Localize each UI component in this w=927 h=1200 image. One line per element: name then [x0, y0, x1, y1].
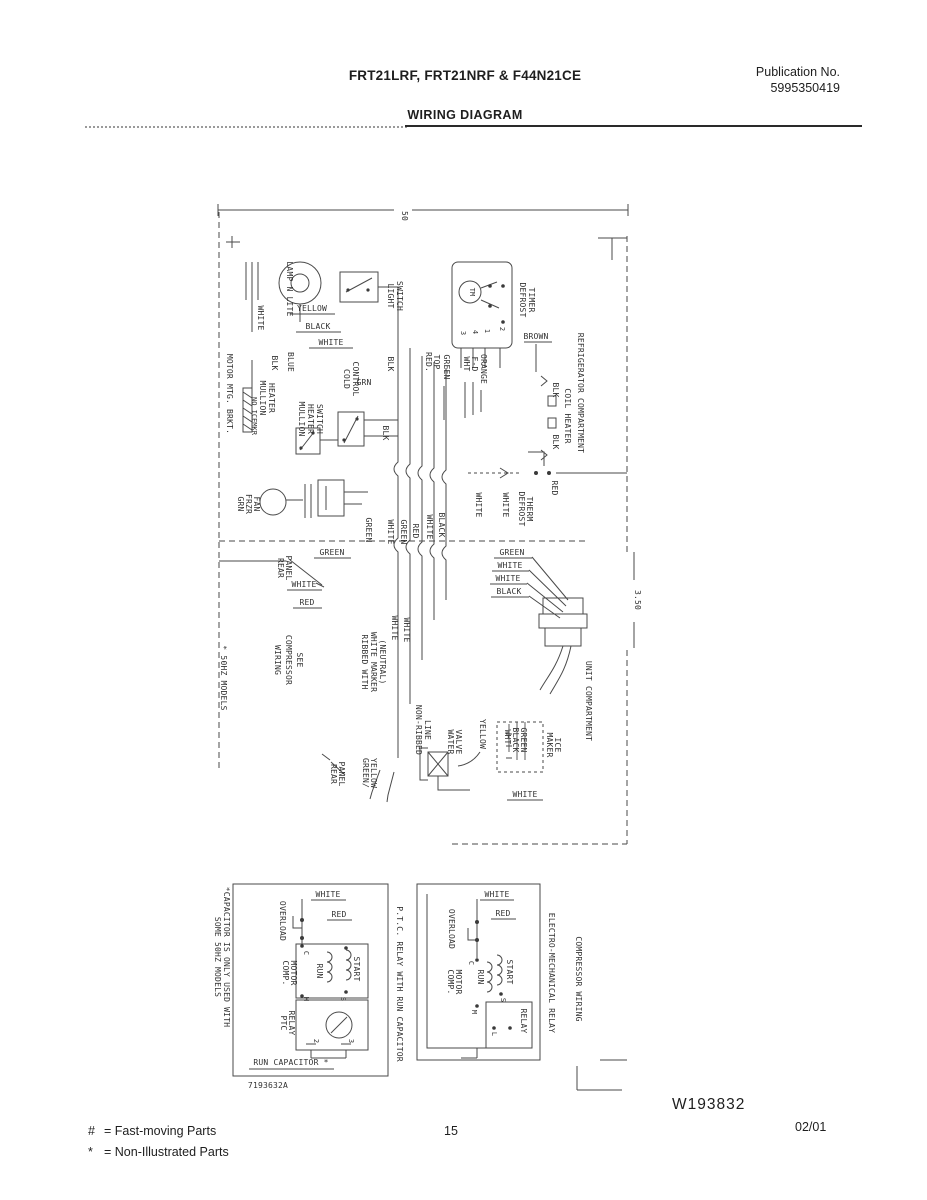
em-wire-red: RED [495, 909, 510, 918]
ice-maker-wire-3: WHT [503, 729, 512, 744]
em-comp-motor-2: MOTOR [454, 969, 463, 994]
ptc-note-1: *CAPACITOR IS ONLY USED WITH [222, 887, 231, 1027]
ptc-terminal-m: M [302, 997, 310, 1001]
cold-control-label-2: CONTROL [351, 361, 360, 396]
rear-panel-lower-1: REAR [329, 764, 338, 784]
harness-wire-2: WHITE [497, 561, 522, 570]
compressor-wiring-label: COMPRESSOR WIRING [574, 936, 583, 1021]
wire-brown: BROWN [523, 332, 548, 341]
bundle-wire-6: BLACK [437, 512, 446, 537]
wire-fd: F-D [470, 356, 479, 371]
green-yellow-1: GREEN/ [361, 758, 370, 788]
ptc-terminal-2: 2 [312, 1039, 320, 1043]
wire-orange-t1: ORANGE [479, 354, 488, 384]
see-compressor-wiring-2: COMPRESSOR [284, 635, 293, 685]
wire-yellow: YELLOW [297, 304, 327, 313]
legend-text-non-illustrated: = Non-Illustrated Parts [104, 1142, 229, 1163]
wire-blk-b: BLK [270, 355, 279, 370]
ptc-diagram-linework [233, 884, 388, 1076]
dimension-top: 50 [400, 211, 409, 221]
see-compressor-wiring-1: SEE [295, 652, 304, 667]
page-number: 15 [444, 1124, 458, 1138]
rear-panel-wire-3: RED [299, 598, 314, 607]
coil-heater-wire-1: BLK [551, 382, 560, 397]
unit-compartment-label: UNIT COMPARTMENT [584, 661, 593, 741]
water-valve-label-2: VALVE [454, 729, 463, 754]
ribbed-note-2: WHITE MARKER [369, 632, 378, 692]
em-overload-label: OVERLOAD [447, 909, 456, 949]
em-terminal-c: C [467, 961, 475, 965]
em-comp-motor-1: COMP. [446, 969, 455, 994]
legend-symbol-hash: # [88, 1121, 104, 1142]
wire-white-top: WHITE [318, 338, 343, 347]
wire-black: BLACK [305, 322, 330, 331]
wire-red-top-1: RED. [424, 352, 433, 372]
wire-blue: BLUE [286, 352, 295, 372]
legend-text-fast-moving: = Fast-moving Parts [104, 1121, 216, 1142]
ribbed-note-3: (NEUTRAL) [378, 639, 387, 684]
ptc-terminal-3: 3 [347, 1039, 355, 1043]
ptc-terminal-s: S [339, 997, 347, 1001]
em-run-label: RUN [476, 969, 485, 984]
harness-wire-1: GREEN [499, 548, 524, 557]
lamp-label: LAMP N LITE [285, 261, 294, 316]
harness-wire-4: BLACK [496, 587, 521, 596]
wire-white-lamp: WHITE [256, 305, 265, 330]
non-ribbed-line-1: NON-RIBBED [414, 705, 423, 755]
legend-non-illustrated: * = Non-Illustrated Parts [88, 1142, 229, 1163]
em-title: ELECTRO-MECHANICAL RELAY [547, 913, 556, 1033]
frzr-fan-label-1: FRZR [244, 494, 253, 514]
em-diagram-labels: ELECTRO-MECHANICAL RELAY COMPRESSOR WIRI… [446, 890, 583, 1036]
defrost-therm-wire-1: WHITE [474, 492, 483, 517]
bundle-wire-2: WHITE [386, 519, 395, 544]
defrost-timer-label-1: DEFROST [518, 282, 527, 317]
green-yellow-2: YELLOW [369, 758, 378, 788]
water-valve-label-1: WATER [446, 729, 455, 754]
ice-maker-label-2: MAKER [545, 732, 554, 757]
main-diagram-labels: 50 3.50 REFRIGERATOR COMPARTMENT UNIT CO… [219, 198, 642, 800]
timer-terminal-1: 1 [483, 329, 491, 333]
mullion-heater-label-3: NO ICEMKR [250, 397, 258, 436]
timer-terminal-4: 4 [471, 330, 479, 334]
date-code: 02/01 [795, 1120, 826, 1134]
legend-symbol-star: * [88, 1142, 104, 1163]
ptc-run-label: RUN [315, 963, 324, 978]
bundle-wire-3: GREEN [399, 519, 408, 544]
water-valve-wire: YELLOW [478, 719, 487, 749]
ptc-run-capacitor-label: RUN CAPACITOR * [253, 1058, 328, 1067]
ptc-overload-label: OVERLOAD [278, 901, 287, 941]
wire-blk-c: BLK [381, 425, 390, 440]
legend-fast-moving: # = Fast-moving Parts [88, 1121, 229, 1142]
frzr-fan-label-2: FAN [252, 496, 261, 511]
ice-maker-wire-4: WHITE [512, 790, 537, 799]
mullion-switch-label-3: SWITCH [315, 404, 324, 434]
ptc-relay-label-2: RELAY [287, 1010, 296, 1035]
coil-heater-wire-2: BLK [551, 434, 560, 449]
ptc-part-number: 7193632A [248, 1081, 288, 1090]
em-start-label: START [505, 959, 514, 984]
neutral-wire-2: WHITE [402, 617, 411, 642]
defrost-therm-wire-2: WHITE [501, 492, 510, 517]
parts-legend: # = Fast-moving Parts * = Non-Illustrate… [88, 1121, 229, 1163]
defrost-therm-label-2: THERM [525, 496, 534, 521]
ptc-diagram-labels: P.T.C. RELAY WITH RUN CAPACITOR WHITE RE… [213, 887, 404, 1090]
wire-blk-a: BLK [386, 356, 395, 371]
see-compressor-wiring-3: WIRING [273, 645, 282, 675]
mullion-heater-label-2: HEATER [267, 383, 276, 413]
rear-panel-lower-2: PANEL [337, 761, 346, 786]
non-ribbed-line-2: LINE [423, 720, 432, 740]
frzr-fan-wire: GRN [236, 496, 245, 511]
manual-page: FRT21LRF, FRT21NRF & F44N21CE Publicatio… [0, 0, 927, 1200]
models-note: * 50HZ MODELS [219, 645, 228, 710]
ptc-relay-label-1: PTC [279, 1015, 288, 1030]
timer-dial-label: TM [468, 288, 476, 296]
wire-wht-t4: WHT [462, 356, 471, 371]
em-terminal-m: M [470, 1010, 478, 1014]
rear-panel-wire-2: WHITE [291, 580, 316, 589]
ptc-start-label: START [352, 956, 361, 981]
defrost-therm-label-1: DEFROST [517, 491, 526, 526]
mullion-switch-label-2: HEATER [306, 404, 315, 434]
ptc-comp-motor-1: COMP. [281, 960, 290, 985]
em-relay-label: RELAY [519, 1008, 528, 1033]
wiring-diagram-canvas: 50 3.50 REFRIGERATOR COMPARTMENT UNIT CO… [0, 0, 927, 1200]
bundle-wire-4: RED [411, 523, 420, 538]
rear-panel-upper-1: REAR [276, 558, 285, 578]
defrost-therm-wire-3: RED [550, 480, 559, 495]
ptc-wire-white: WHITE [315, 890, 340, 899]
motor-mtg-brkt-label: MOTOR MTG. BRKT. [225, 354, 234, 434]
dimension-right: 3.50 [633, 590, 642, 610]
rear-panel-upper-2: PANEL [284, 555, 293, 580]
ribbed-note-1: RIBBED WITH [360, 634, 369, 689]
ptc-wire-red: RED [331, 910, 346, 919]
cold-control-label-1: COLD [342, 369, 351, 389]
drawing-number: W193832 [672, 1096, 745, 1114]
mullion-switch-label-1: MULLION [297, 401, 306, 436]
defrost-timer-label-2: TIMER [527, 287, 536, 312]
light-switch-label-1: LIGHT [386, 283, 395, 308]
rear-panel-wire-1: GREEN [319, 548, 344, 557]
wire-green-t3: GREEN [442, 354, 451, 379]
coil-heater-label: COIL HEATER [563, 388, 572, 443]
em-wire-white: WHITE [484, 890, 509, 899]
light-switch-label-2: SWITCH [395, 281, 404, 311]
em-terminal-s: S [499, 998, 507, 1002]
em-terminal-l: L [490, 1032, 498, 1036]
neutral-wire-1: WHITE [390, 615, 399, 640]
bundle-wire-5: WHITE [425, 514, 434, 539]
refrigerator-compartment-label: REFRIGERATOR COMPARTMENT [576, 333, 585, 453]
timer-terminal-3: 3 [459, 331, 467, 335]
ptc-terminal-c: C [302, 951, 310, 955]
wire-red-top-2: TOP [432, 354, 441, 369]
ptc-comp-motor-2: MOTOR [289, 960, 298, 985]
timer-terminal-2: 2 [498, 327, 506, 331]
mullion-heater-label-1: MULLION [258, 380, 267, 415]
ptc-note-2: SOME 50HZ MODELS [213, 917, 222, 997]
bundle-wire-1: GREEN [364, 517, 373, 542]
harness-wire-3: WHITE [495, 574, 520, 583]
ptc-title: P.T.C. RELAY WITH RUN CAPACITOR [395, 906, 404, 1062]
